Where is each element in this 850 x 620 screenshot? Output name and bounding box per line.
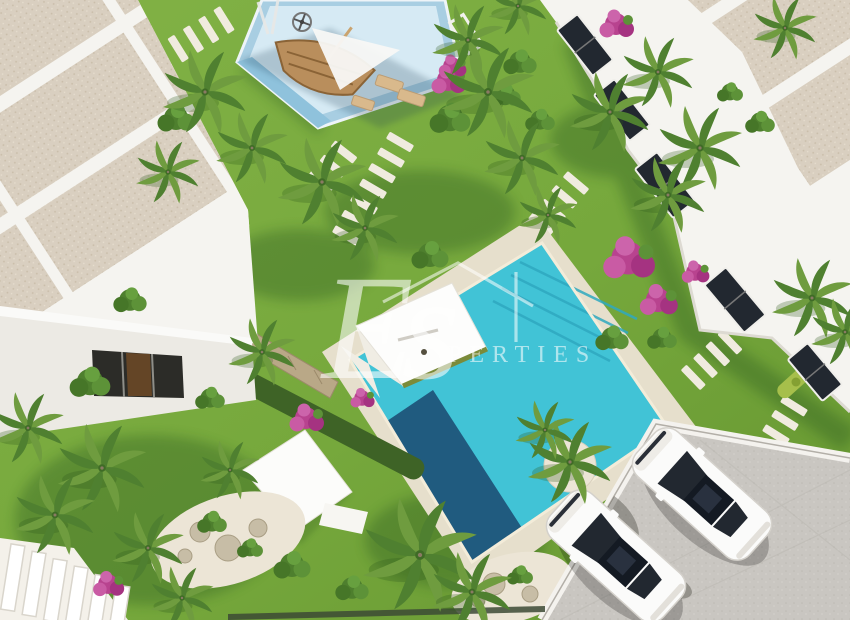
watermark-script: Es xyxy=(320,245,456,411)
watermark-text: PERTIES xyxy=(448,342,597,368)
render-canvas: Es PERTIES xyxy=(0,0,850,620)
property-render: Es PERTIES xyxy=(0,0,850,620)
